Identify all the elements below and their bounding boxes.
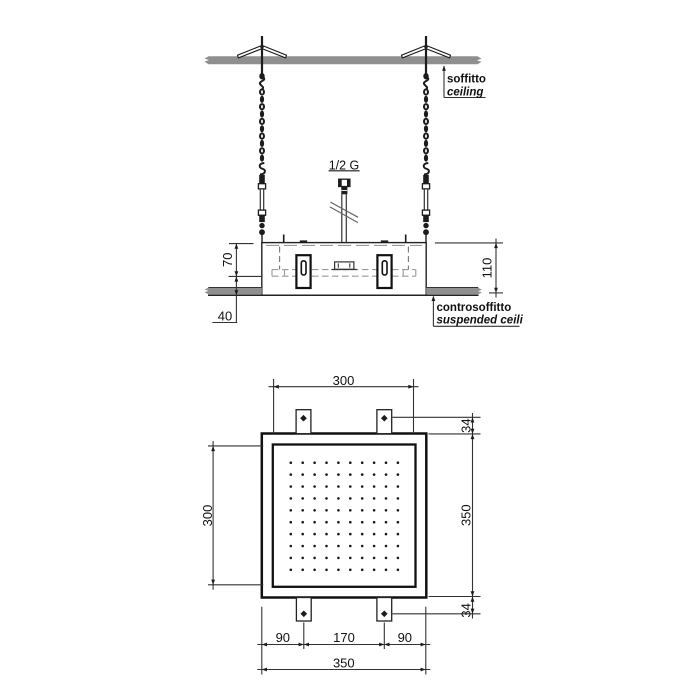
svg-text:350: 350 (333, 655, 355, 670)
svg-text:suspended ceili: suspended ceili (437, 315, 524, 327)
svg-text:350: 350 (459, 504, 474, 526)
svg-text:110: 110 (480, 258, 495, 279)
svg-text:34: 34 (459, 418, 474, 432)
svg-text:300: 300 (200, 505, 215, 527)
svg-text:170: 170 (333, 630, 355, 645)
svg-text:300: 300 (333, 373, 355, 388)
svg-text:70: 70 (220, 253, 235, 267)
svg-text:90: 90 (276, 630, 290, 645)
svg-text:controsoffitto: controsoffitto (437, 302, 512, 314)
svg-text:ceiling: ceiling (447, 87, 483, 99)
svg-text:soffitto: soffitto (447, 74, 486, 86)
svg-text:90: 90 (398, 630, 412, 645)
svg-text:34: 34 (459, 603, 474, 617)
svg-text:40: 40 (218, 308, 232, 323)
